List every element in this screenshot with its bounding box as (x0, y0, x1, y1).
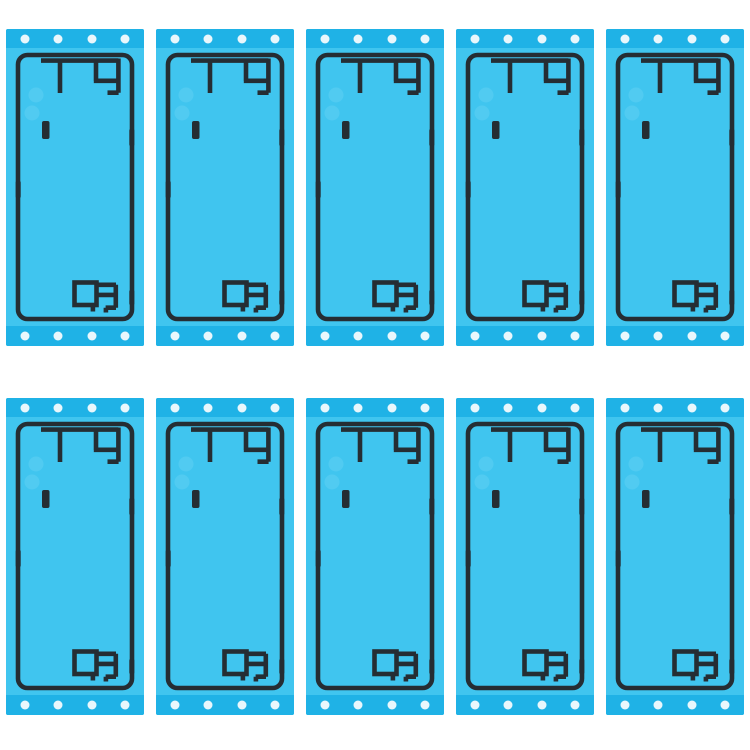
left-tab (616, 550, 621, 567)
product-photo (0, 0, 750, 750)
right-tab-upper (129, 498, 134, 515)
left-tab (166, 550, 171, 567)
adhesive-sheet-r2-c3 (306, 398, 444, 715)
right-tab-lower (279, 290, 284, 305)
adhesive-sheet-graphic (606, 398, 744, 715)
right-tab-lower (129, 290, 134, 305)
adhesive-sheet-graphic (6, 29, 144, 346)
right-tab-lower (579, 290, 584, 305)
flash-notch (42, 490, 50, 508)
adhesive-sheet-graphic (6, 398, 144, 715)
adhesive-sheet-r2-c2 (156, 398, 294, 715)
left-tab (316, 550, 321, 567)
right-tab-lower (429, 290, 434, 305)
adhesive-sheet-graphic (156, 29, 294, 346)
right-tab-upper (129, 129, 134, 146)
adhesive-sheet-graphic (306, 29, 444, 346)
right-tab-upper (579, 129, 584, 146)
left-tab (616, 181, 621, 198)
flash-notch (642, 490, 650, 508)
flash-notch (192, 490, 200, 508)
adhesive-sheet-graphic (156, 398, 294, 715)
right-tab-upper (729, 129, 734, 146)
right-tab-upper (279, 129, 284, 146)
left-tab (16, 550, 21, 567)
adhesive-sheet-graphic (456, 29, 594, 346)
right-tab-lower (729, 659, 734, 674)
adhesive-sheet-graphic (306, 398, 444, 715)
adhesive-sheet-r1-c5 (606, 29, 744, 346)
right-tab-upper (729, 498, 734, 515)
flash-notch (342, 121, 350, 139)
right-tab-lower (429, 659, 434, 674)
flash-notch (42, 121, 50, 139)
left-tab (16, 181, 21, 198)
right-tab-lower (279, 659, 284, 674)
flash-notch (642, 121, 650, 139)
right-tab-lower (129, 659, 134, 674)
flash-notch (492, 121, 500, 139)
left-tab (166, 181, 171, 198)
adhesive-sheet-r2-c5 (606, 398, 744, 715)
adhesive-sheet-r1-c2 (156, 29, 294, 346)
right-tab-lower (729, 290, 734, 305)
adhesive-sheet-r1-c3 (306, 29, 444, 346)
adhesive-sheet-graphic (456, 398, 594, 715)
right-tab-upper (429, 129, 434, 146)
right-tab-upper (579, 498, 584, 515)
adhesive-sheet-r2-c4 (456, 398, 594, 715)
right-tab-upper (429, 498, 434, 515)
adhesive-sheet-r1-c1 (6, 29, 144, 346)
flash-notch (492, 490, 500, 508)
left-tab (466, 181, 471, 198)
adhesive-sheet-graphic (606, 29, 744, 346)
right-tab-upper (279, 498, 284, 515)
flash-notch (192, 121, 200, 139)
right-tab-lower (579, 659, 584, 674)
left-tab (316, 181, 321, 198)
left-tab (466, 550, 471, 567)
flash-notch (342, 490, 350, 508)
adhesive-sheet-r1-c4 (456, 29, 594, 346)
adhesive-sheet-r2-c1 (6, 398, 144, 715)
